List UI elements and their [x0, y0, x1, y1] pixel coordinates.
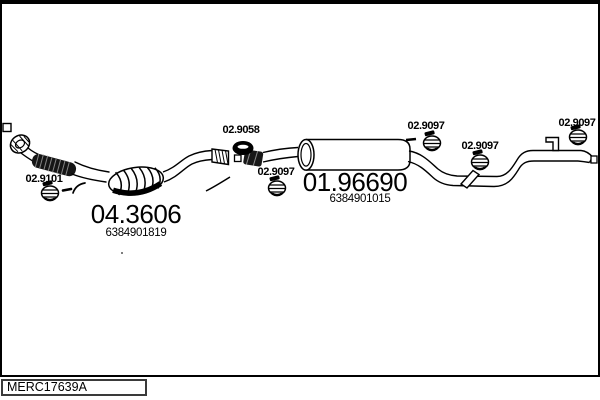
exhaust-system-diagram: 02.9101 02.9058 02.9097 02.9097 02.9097 … — [0, 0, 600, 400]
part-code-front-clamp: 02.9101 — [14, 174, 74, 185]
drawing-ref-code: MERC17639A — [7, 380, 87, 394]
tail-tip-square — [591, 156, 597, 163]
wall-mount-square — [3, 124, 11, 132]
rubber-hanger-icon — [424, 130, 441, 150]
pipe-hook — [73, 183, 85, 193]
part-number-catalyst: 04.3606 — [66, 201, 206, 227]
gasket-icon — [233, 141, 254, 155]
rear-silencer-drawing — [298, 140, 410, 171]
hanger-pin — [406, 139, 416, 140]
clamp-icon — [269, 175, 286, 195]
pipe-lug — [63, 189, 71, 191]
connecting-pipe-drawing — [263, 148, 298, 163]
drawing-ref-box: MERC17639A — [1, 379, 147, 396]
pipe-hook — [206, 177, 230, 191]
part-code-hanger-front: 02.9097 — [396, 121, 456, 132]
hanger-rod-drawing — [546, 138, 559, 151]
part-code-hanger-rear: 02.9097 — [549, 118, 600, 129]
stray-mark — [121, 252, 123, 254]
tail-pipe-drawing — [408, 151, 597, 187]
part-number-rear-silencer: 01.96690 — [285, 169, 425, 195]
joint-gap-square — [235, 155, 242, 162]
part-code-gasket: 02.9058 — [211, 125, 271, 136]
rubber-hanger-icon — [472, 149, 489, 169]
front-flange-ring — [7, 131, 33, 156]
part-code-hanger-mid: 02.9097 — [450, 141, 510, 152]
catalytic-converter-drawing — [107, 164, 165, 198]
joint-flange-drawing — [212, 149, 229, 165]
oe-number-catalyst: 6384901819 — [76, 228, 196, 240]
oe-number-rear-silencer: 6384901015 — [300, 194, 420, 206]
